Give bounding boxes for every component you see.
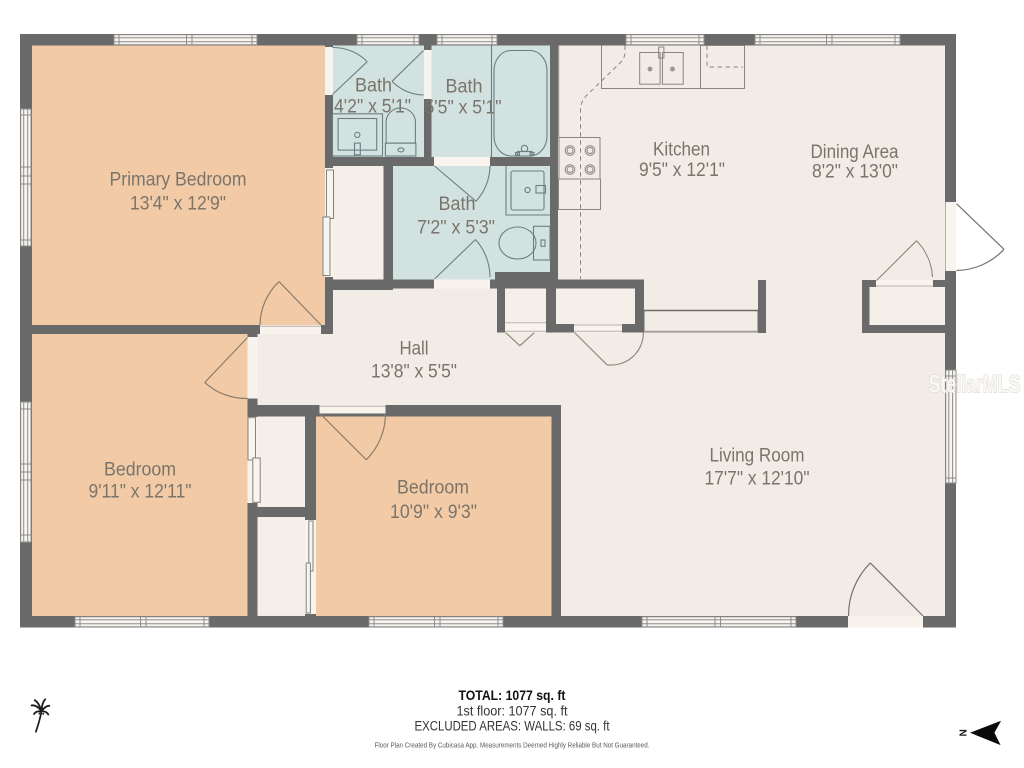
svg-text:Bath: Bath (355, 76, 392, 97)
svg-text:13'4" x 12'9": 13'4" x 12'9" (130, 194, 226, 215)
svg-text:Bath: Bath (439, 194, 476, 215)
svg-text:Bedroom: Bedroom (397, 478, 469, 499)
svg-text:10'9" x 9'3": 10'9" x 9'3" (390, 502, 477, 523)
svg-text:13'8" x 5'5": 13'8" x 5'5" (371, 362, 457, 383)
svg-text:7'2" x 5'3": 7'2" x 5'3" (417, 218, 495, 239)
svg-text:Living Room: Living Room (710, 446, 805, 467)
svg-text:4'2" x 5'1": 4'2" x 5'1" (334, 97, 411, 118)
svg-text:TOTAL: 1077 sq. ft: TOTAL: 1077 sq. ft (459, 688, 566, 703)
svg-text:5'5" x 5'1": 5'5" x 5'1" (425, 98, 502, 119)
svg-text:EXCLUDED AREAS: WALLS: 69 sq.: EXCLUDED AREAS: WALLS: 69 sq. ft (415, 719, 610, 734)
svg-text:Bath: Bath (446, 77, 483, 98)
svg-text:Floor Plan Created By Cubicasa: Floor Plan Created By Cubicasa App. Meas… (375, 743, 650, 750)
svg-text:StellarMLS: StellarMLS (929, 371, 1021, 399)
svg-text:Bedroom: Bedroom (104, 460, 176, 481)
svg-text:Dining Area: Dining Area (811, 142, 899, 163)
svg-text:9'5" x 12'1": 9'5" x 12'1" (639, 160, 725, 181)
svg-text:17'7" x 12'10": 17'7" x 12'10" (705, 469, 810, 490)
svg-text:N: N (957, 729, 968, 736)
svg-text:1st floor: 1077 sq. ft: 1st floor: 1077 sq. ft (457, 704, 568, 719)
svg-text:Hall: Hall (400, 339, 429, 360)
svg-text:Primary Bedroom: Primary Bedroom (110, 170, 247, 191)
svg-text:Kitchen: Kitchen (653, 140, 710, 161)
svg-text:8'2" x 13'0": 8'2" x 13'0" (812, 162, 898, 183)
svg-text:9'11" x 12'11": 9'11" x 12'11" (89, 482, 192, 503)
